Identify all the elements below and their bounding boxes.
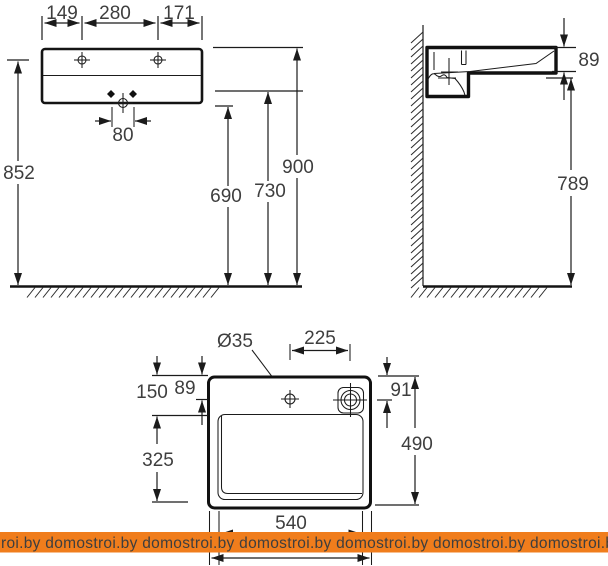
side-floor-hatch — [411, 288, 547, 298]
front-view: 149 280 171 80 — [3, 3, 314, 298]
front-dim-280: 280 — [99, 3, 131, 24]
plan-dim-540: 540 — [275, 513, 307, 534]
side-dim-789: 789 — [557, 174, 589, 195]
front-dim-149: 149 — [46, 3, 78, 24]
side-dim-89: 89 — [578, 50, 599, 71]
front-dim-900: 900 — [282, 157, 314, 178]
drawing-canvas: 149 280 171 80 — [0, 0, 608, 566]
wall-hatch — [411, 32, 423, 288]
front-dim-852: 852 — [3, 163, 35, 184]
plan-dim-150: 150 — [136, 382, 168, 403]
plan-dim-325: 325 — [142, 450, 174, 471]
front-floor-hatch — [27, 288, 219, 298]
watermark-text: roi.by domostroi.by domostroi.by domostr… — [1, 535, 608, 552]
plan-dim-225: 225 — [304, 328, 336, 349]
side-view: 89 789 — [411, 18, 600, 298]
watermark-band: roi.by domostroi.by domostroi.by domostr… — [0, 532, 608, 553]
plan-dim-490: 490 — [401, 434, 433, 455]
plan-dim-91: 91 — [390, 380, 411, 401]
front-dim-80: 80 — [112, 125, 133, 146]
technical-drawing-page: 149 280 171 80 — [0, 0, 608, 566]
plan-dim-faucet-dia: Ø35 — [217, 331, 253, 352]
front-dim-730: 730 — [254, 181, 286, 202]
plan-dim-89: 89 — [174, 378, 195, 399]
plan-view: Ø35 225 150 89 — [136, 328, 433, 565]
front-dim-690: 690 — [210, 186, 242, 207]
front-dim-171: 171 — [163, 3, 195, 24]
